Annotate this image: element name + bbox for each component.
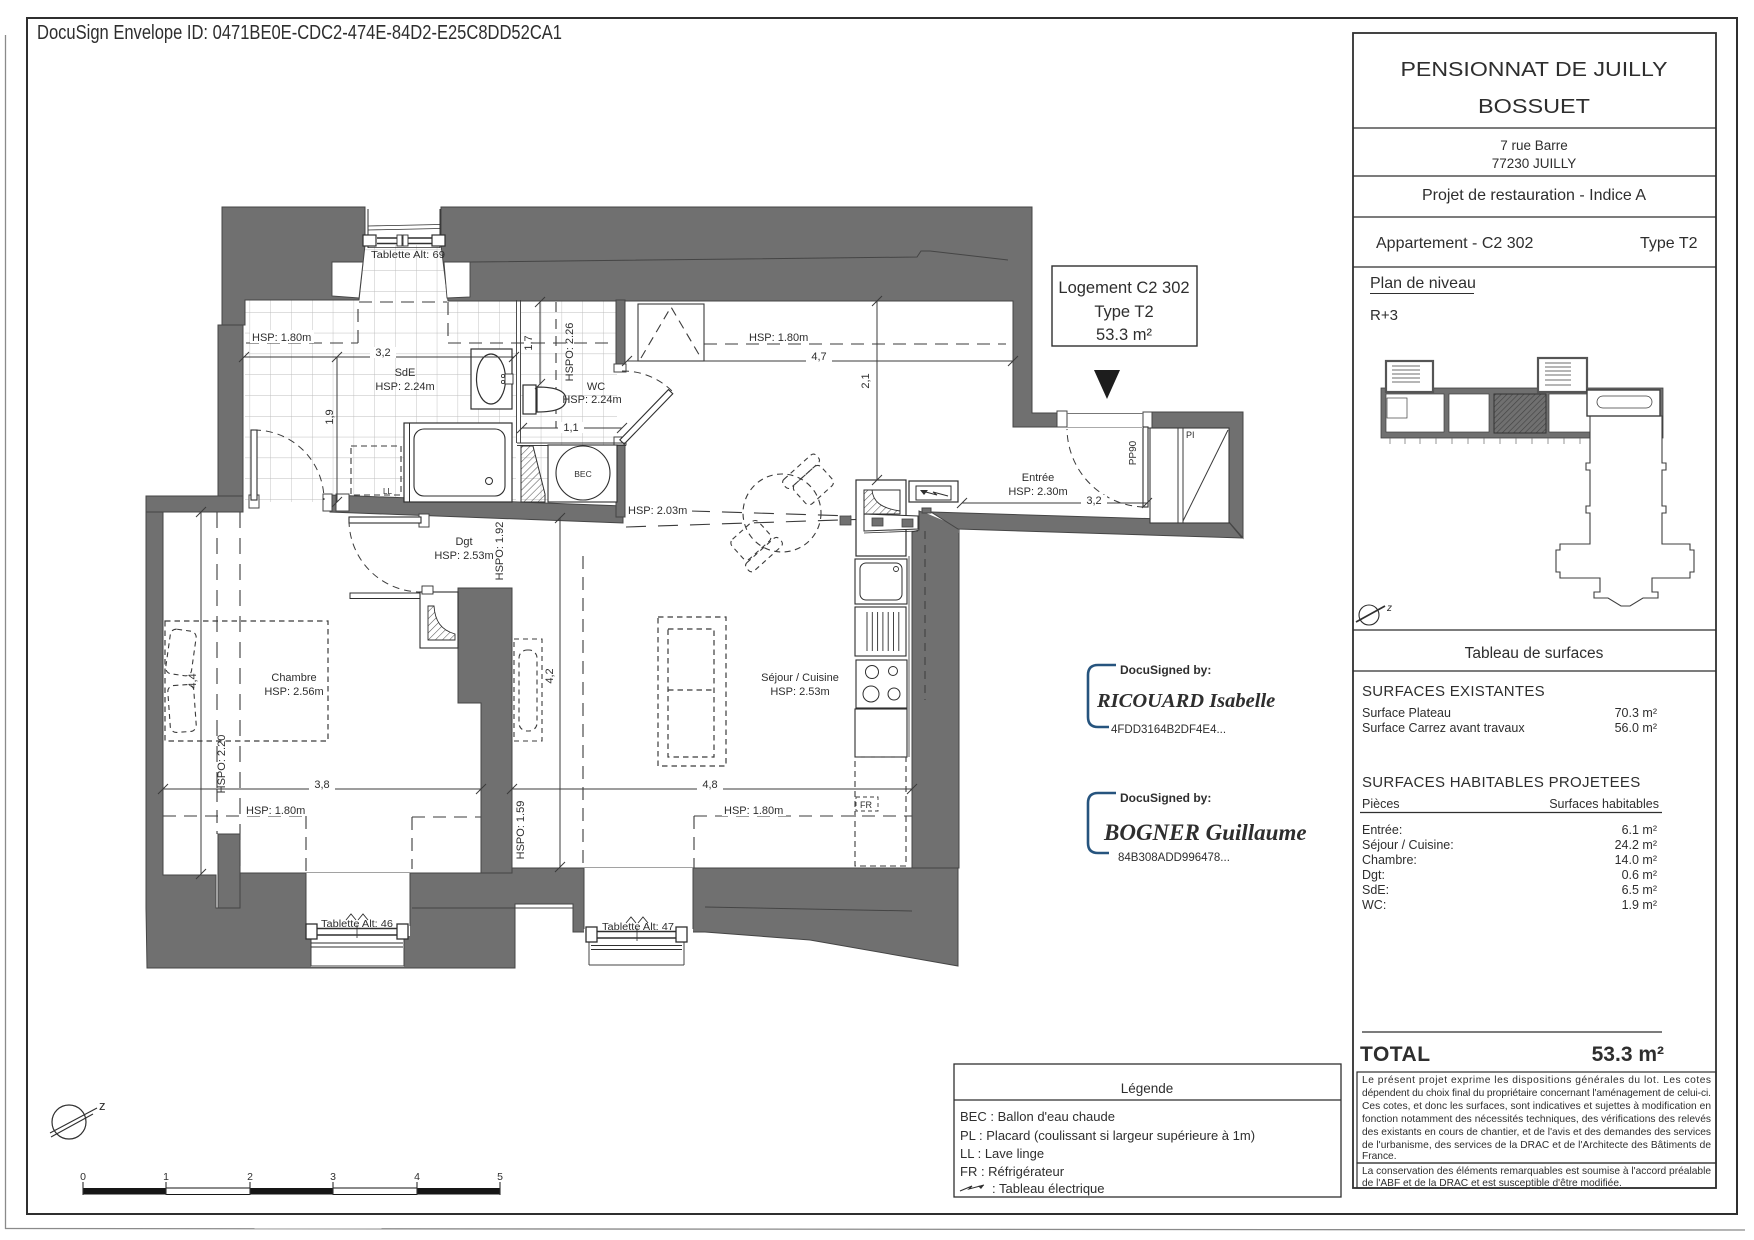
svg-text:Chambre: Chambre <box>271 672 316 684</box>
svg-text:LL : Lave linge: LL : Lave linge <box>960 1146 1044 1161</box>
svg-text:5: 5 <box>497 1171 503 1183</box>
svg-text:Type T2: Type T2 <box>1640 235 1698 252</box>
svg-text:de l'ABF et de la DRAC et est: de l'ABF et de la DRAC et est susceptibl… <box>1362 1178 1622 1189</box>
svg-text:53.3 m²: 53.3 m² <box>1592 1043 1664 1066</box>
svg-text:3,8: 3,8 <box>314 779 329 791</box>
svg-text:Ces cotes, et donc les surface: Ces cotes, et donc les surfaces, sont in… <box>1362 1101 1711 1112</box>
svg-text:RICOUARD Isabelle: RICOUARD Isabelle <box>1096 690 1275 712</box>
svg-text:4,7: 4,7 <box>811 351 826 363</box>
svg-text:HSP: 1.80m: HSP: 1.80m <box>246 805 305 817</box>
svg-text:fonction notamment des nécessi: fonction notamment des nécessités techni… <box>1362 1114 1711 1125</box>
svg-text:SdE: SdE <box>395 367 416 379</box>
svg-text:FR: FR <box>860 800 872 810</box>
svg-text:84B308ADD996478...: 84B308ADD996478... <box>1118 852 1230 864</box>
svg-text:HSP: 2.56m: HSP: 2.56m <box>264 686 323 698</box>
svg-text:PENSIONNAT DE JUILLY: PENSIONNAT DE JUILLY <box>1401 59 1668 81</box>
svg-text:HSPO: 2.20: HSPO: 2.20 <box>216 735 228 794</box>
svg-text:4: 4 <box>414 1171 420 1183</box>
svg-text:z: z <box>1386 603 1392 614</box>
svg-text:3,2: 3,2 <box>1086 495 1101 507</box>
svg-text:Entrée:: Entrée: <box>1362 823 1402 837</box>
svg-text:Dgt: Dgt <box>455 536 472 548</box>
svg-text:6.1 m²: 6.1 m² <box>1622 823 1657 837</box>
svg-text:Surfaces habitables: Surfaces habitables <box>1549 797 1659 811</box>
svg-text:2,1: 2,1 <box>860 373 872 388</box>
svg-text:BEC: BEC <box>574 469 591 479</box>
svg-text:FR : Réfrigérateur: FR : Réfrigérateur <box>960 1164 1065 1179</box>
svg-text:Le présent projet exprime les: Le présent projet exprime les dispositio… <box>1362 1075 1711 1086</box>
svg-text:de l'urbanisme, des services d: de l'urbanisme, des services de la DRAC … <box>1362 1140 1711 1151</box>
svg-text:Appartement - C2 302: Appartement - C2 302 <box>1376 235 1534 252</box>
svg-text:3: 3 <box>330 1171 336 1183</box>
svg-text:HSP: 1.80m: HSP: 1.80m <box>252 332 311 344</box>
svg-text:BOSSUET: BOSSUET <box>1478 96 1590 118</box>
svg-text:24.2 m²: 24.2 m² <box>1615 838 1657 852</box>
svg-text:1,9: 1,9 <box>324 409 336 424</box>
svg-text:7 rue Barre: 7 rue Barre <box>1500 138 1568 153</box>
svg-text:HSP: 2.24m: HSP: 2.24m <box>562 394 621 406</box>
svg-text:Plan de niveau: Plan de niveau <box>1370 275 1476 292</box>
svg-text:LL: LL <box>383 487 392 496</box>
svg-text:dépendent du choix final du pr: dépendent du choix final du propriétaire… <box>1362 1088 1711 1099</box>
svg-text:HSP: 2.24m: HSP: 2.24m <box>375 381 434 393</box>
svg-text:6.5 m²: 6.5 m² <box>1622 883 1657 897</box>
svg-text:SURFACES EXISTANTES: SURFACES EXISTANTES <box>1362 683 1545 700</box>
svg-text:SURFACES HABITABLES PROJETEES: SURFACES HABITABLES PROJETEES <box>1362 774 1641 791</box>
svg-text:4FDD3164B2DF4E4...: 4FDD3164B2DF4E4... <box>1111 724 1226 736</box>
svg-text:HSPO: 1.59: HSPO: 1.59 <box>515 801 527 860</box>
svg-text:Tablette Alt: 46: Tablette Alt: 46 <box>321 919 393 930</box>
svg-text:BEC : Ballon d'eau chaude: BEC : Ballon d'eau chaude <box>960 1109 1115 1124</box>
svg-text:4,8: 4,8 <box>702 779 717 791</box>
svg-text:HSP: 1.80m: HSP: 1.80m <box>749 332 808 344</box>
svg-text:Dgt:: Dgt: <box>1362 868 1385 882</box>
svg-text:Tableau de surfaces: Tableau de surfaces <box>1465 645 1604 662</box>
svg-text:Séjour / Cuisine: Séjour / Cuisine <box>761 672 839 684</box>
svg-text:DocuSigned by:: DocuSigned by: <box>1120 791 1211 805</box>
svg-text:La conservation des éléments r: La conservation des éléments remarquable… <box>1362 1166 1711 1177</box>
svg-text:2: 2 <box>247 1171 253 1183</box>
svg-text:des existants en cours de chan: des existants en cours de chantier, et d… <box>1362 1127 1711 1138</box>
svg-text:1: 1 <box>163 1171 169 1183</box>
svg-text:77230 JUILLY: 77230 JUILLY <box>1492 156 1577 171</box>
svg-text:France.: France. <box>1362 1151 1397 1162</box>
svg-text:z: z <box>99 1098 106 1113</box>
svg-text:Tablette Alt: 47: Tablette Alt: 47 <box>602 922 674 933</box>
svg-text:TOTAL: TOTAL <box>1360 1043 1431 1066</box>
svg-text:70.3 m²: 70.3 m² <box>1615 706 1657 720</box>
svg-text:PL : Placard (coulissant si la: PL : Placard (coulissant si largeur supé… <box>960 1128 1255 1143</box>
svg-text:BOGNER Guillaume: BOGNER Guillaume <box>1103 820 1307 845</box>
svg-text:1,7: 1,7 <box>523 335 535 350</box>
svg-text:PI: PI <box>1186 430 1195 440</box>
svg-text:HSP: 2.30m: HSP: 2.30m <box>1008 486 1067 498</box>
svg-text:0: 0 <box>80 1171 86 1183</box>
svg-text:: Tableau électrique: : Tableau électrique <box>992 1181 1105 1196</box>
svg-text:Chambre:: Chambre: <box>1362 853 1417 867</box>
svg-text:Tablette Alt: 69: Tablette Alt: 69 <box>371 250 445 261</box>
svg-text:HSPO: 2.26: HSPO: 2.26 <box>564 323 576 382</box>
svg-text:Pièces: Pièces <box>1362 797 1400 811</box>
svg-text:WC:: WC: <box>1362 898 1386 912</box>
svg-text:4,2: 4,2 <box>544 668 556 683</box>
svg-text:Légende: Légende <box>1121 1081 1174 1096</box>
svg-text:1,1: 1,1 <box>563 422 578 434</box>
svg-text:SdE:: SdE: <box>1362 883 1389 897</box>
svg-text:DocuSign Envelope ID: 0471BE0E: DocuSign Envelope ID: 0471BE0E-CDC2-474E… <box>37 22 562 44</box>
svg-text:HSP: 2.53m: HSP: 2.53m <box>770 686 829 698</box>
svg-text:HSP: 1.80m: HSP: 1.80m <box>724 805 783 817</box>
svg-text:R+3: R+3 <box>1370 307 1398 324</box>
svg-text:0.6 m²: 0.6 m² <box>1622 868 1657 882</box>
svg-text:Projet de restauration - Indic: Projet de restauration - Indice A <box>1422 187 1646 204</box>
svg-text:14.0 m²: 14.0 m² <box>1615 853 1657 867</box>
svg-text:Surface Plateau: Surface Plateau <box>1362 706 1451 720</box>
svg-text:Surface Carrez avant travaux: Surface Carrez avant travaux <box>1362 721 1525 735</box>
svg-text:1.9 m²: 1.9 m² <box>1622 898 1657 912</box>
svg-text:56.0 m²: 56.0 m² <box>1615 721 1657 735</box>
svg-text:53.3 m²: 53.3 m² <box>1096 326 1152 344</box>
svg-text:3,2: 3,2 <box>375 347 390 359</box>
svg-text:Type T2: Type T2 <box>1094 303 1153 321</box>
svg-text:HSP: 2.03m: HSP: 2.03m <box>628 505 687 517</box>
svg-text:HSPO: 1.92: HSPO: 1.92 <box>494 522 506 581</box>
svg-text:WC: WC <box>587 381 605 393</box>
svg-text:PP90: PP90 <box>1128 440 1139 465</box>
svg-text:4,4: 4,4 <box>187 673 199 688</box>
svg-text:HSP: 2.53m: HSP: 2.53m <box>434 550 493 562</box>
svg-text:Entrée: Entrée <box>1022 472 1054 484</box>
svg-text:Logement C2 302: Logement C2 302 <box>1058 279 1189 297</box>
svg-text:Séjour / Cuisine:: Séjour / Cuisine: <box>1362 838 1454 852</box>
svg-text:DocuSigned by:: DocuSigned by: <box>1120 663 1211 677</box>
